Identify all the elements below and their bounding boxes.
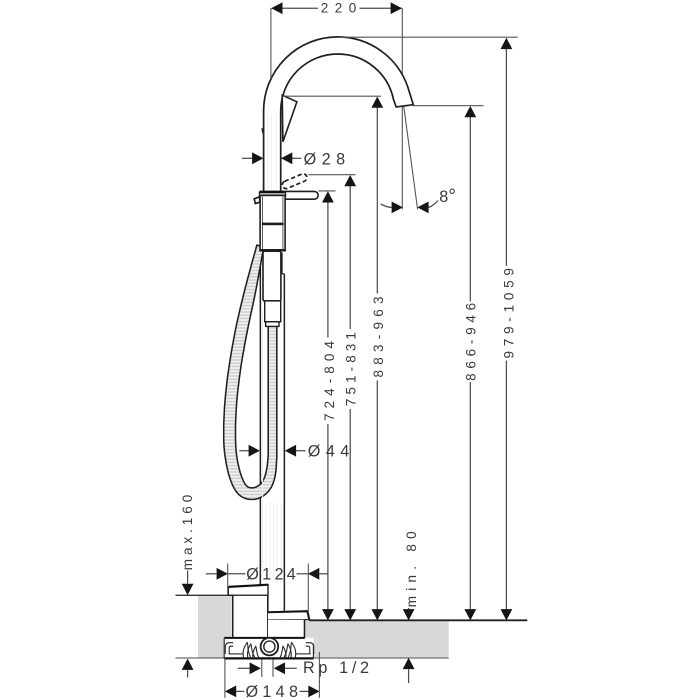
svg-text:8°: 8° [439, 186, 456, 207]
svg-text:Ø124: Ø124 [246, 565, 295, 583]
svg-text:Ø44: Ø44 [308, 442, 350, 460]
svg-text:979-1059: 979-1059 [502, 268, 517, 359]
svg-text:Ø28: Ø28 [304, 150, 346, 168]
svg-text:220: 220 [321, 1, 357, 16]
